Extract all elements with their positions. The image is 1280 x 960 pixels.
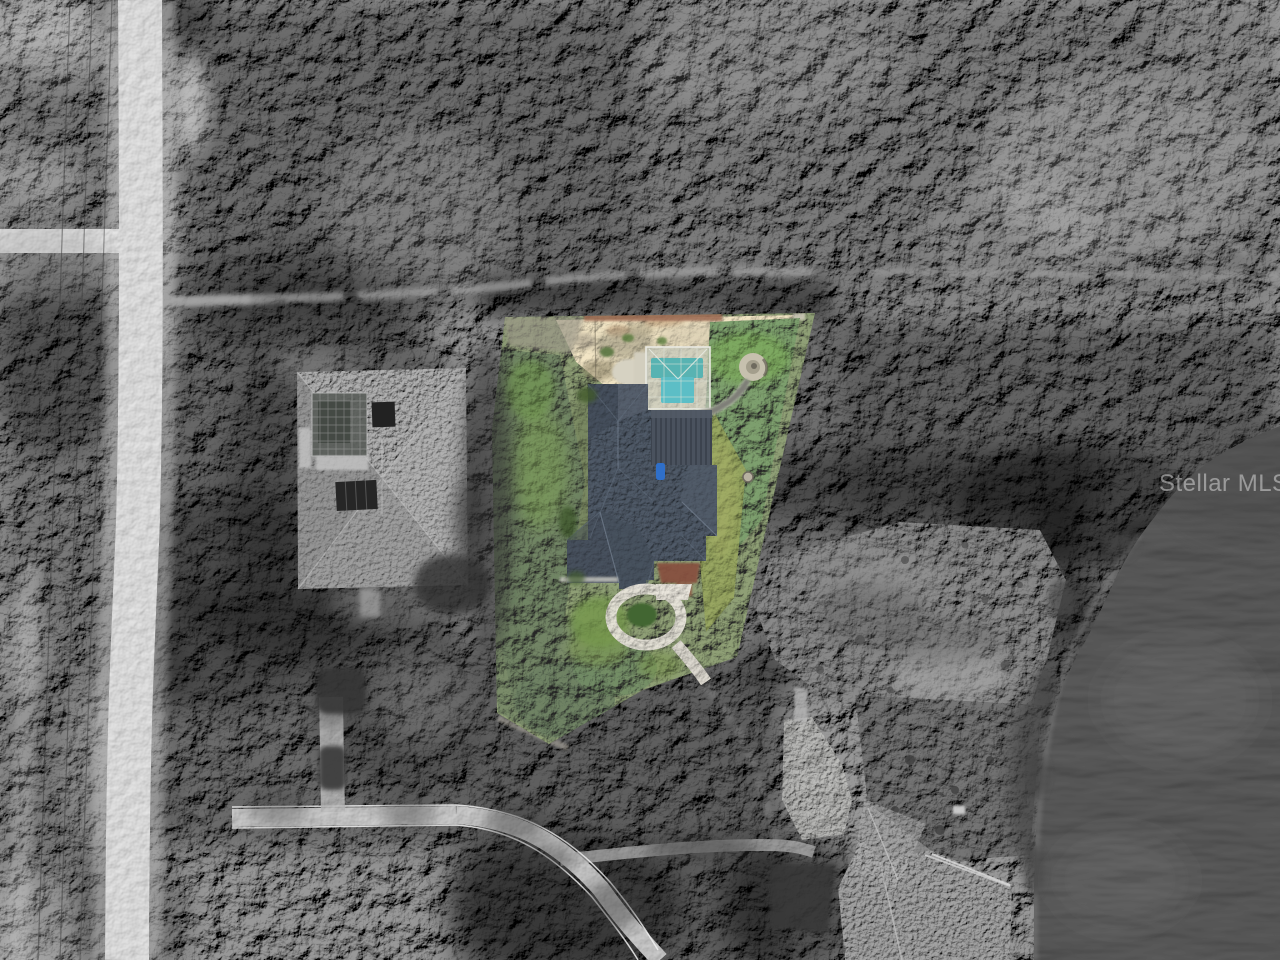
- svg-text:Stellar MLS: Stellar MLS: [1159, 470, 1280, 497]
